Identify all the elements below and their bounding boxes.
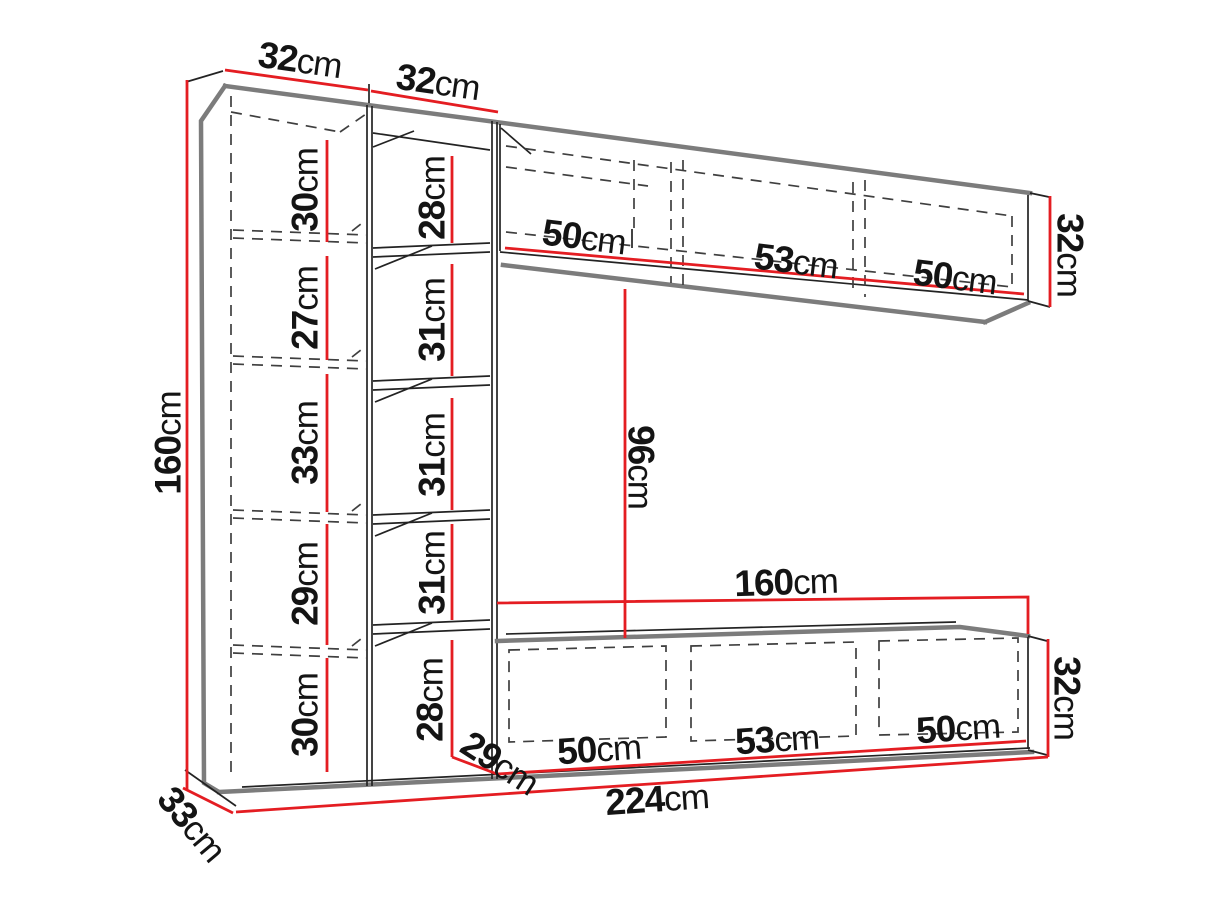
dim-label-tv-stand-width: 160cm bbox=[734, 562, 839, 603]
dim-label-middle-section-1: 28cm bbox=[414, 156, 451, 240]
dim-label-tv-stand-section-3: 50cm bbox=[915, 707, 1001, 750]
middle-column-section-dimension-lines bbox=[452, 156, 497, 774]
dim-label-left-section-3: 33cm bbox=[287, 401, 324, 485]
dim-label-top-shelf-height: 32cm bbox=[1052, 213, 1089, 297]
dim-label-left-section-4: 29cm bbox=[287, 542, 324, 626]
dim-label-middle-section-4: 31cm bbox=[414, 531, 451, 615]
dim-label-tv-stand-section-1: 50cm bbox=[556, 728, 642, 771]
dim-label-left-section-5: 30cm bbox=[287, 673, 324, 757]
tv-stand-dimension-lines bbox=[497, 289, 1048, 774]
dim-label-left-section-1: 30cm bbox=[287, 148, 324, 232]
dim-label-middle-gap-height: 96cm bbox=[623, 425, 660, 509]
dim-label-middle-section-2: 31cm bbox=[414, 278, 451, 362]
dim-label-total-height: 160cm bbox=[150, 391, 187, 494]
furniture-dimension-diagram: 32cm 32cm 160cm 33cm 30cm 27cm 33cm 29cm… bbox=[0, 0, 1214, 911]
dim-label-tv-stand-section-2: 53cm bbox=[734, 718, 820, 761]
dim-label-left-section-2: 27cm bbox=[287, 266, 324, 350]
dim-label-middle-section-5: 28cm bbox=[412, 658, 449, 742]
dim-label-middle-section-3: 31cm bbox=[414, 413, 451, 497]
dim-label-tv-stand-height: 32cm bbox=[1049, 656, 1086, 740]
dim-label-total-width: 224cm bbox=[604, 777, 710, 821]
